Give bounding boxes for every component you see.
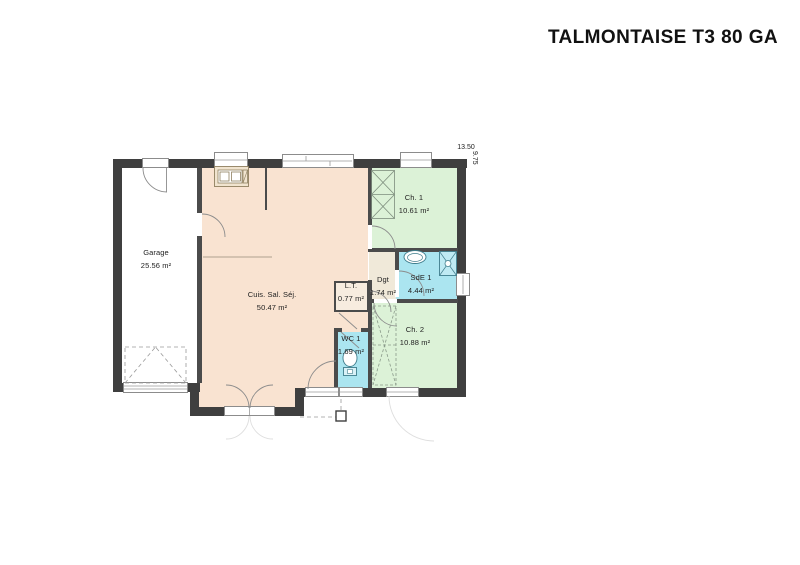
exterior-swing-arcs bbox=[226, 396, 434, 441]
room-label-garage: Garage 25.56 m² bbox=[116, 246, 196, 272]
room-name: Ch. 1 bbox=[374, 191, 454, 204]
room-area: 1.69 m² bbox=[326, 345, 376, 358]
room-name: Cuis. Sal. Séj. bbox=[222, 288, 322, 301]
room-name: Garage bbox=[116, 246, 196, 259]
entry-door-arc bbox=[308, 361, 336, 389]
room-area: 10.88 m² bbox=[375, 336, 455, 349]
closet-door-leaf bbox=[339, 313, 357, 329]
room-area: 50.47 m² bbox=[222, 301, 322, 314]
french-door-left-arc bbox=[226, 385, 249, 408]
porch-post bbox=[336, 411, 346, 421]
room-name: L.T. bbox=[326, 279, 376, 292]
room-name: Ch. 2 bbox=[375, 323, 455, 336]
garage-door-arc bbox=[202, 214, 225, 237]
kitchen-sink-unit bbox=[215, 167, 249, 187]
room-label-bedroom2: Ch. 2 10.88 m² bbox=[375, 323, 455, 349]
room-label-wc: WC 1 1.69 m² bbox=[326, 332, 376, 358]
porch bbox=[300, 399, 346, 421]
room-area: 0.77 m² bbox=[326, 292, 376, 305]
dimension-width-label: 13.50 bbox=[446, 144, 486, 151]
entrance-door-arc bbox=[143, 168, 167, 192]
floor-plan-page: TALMONTAISE T3 80 GA bbox=[0, 0, 800, 565]
dimension-height-label: 9.75 bbox=[471, 151, 478, 165]
room-area: 10.61 m² bbox=[374, 204, 454, 217]
bedroom1-door-arc bbox=[372, 226, 395, 249]
room-label-living: Cuis. Sal. Séj. 50.47 m² bbox=[222, 288, 322, 314]
garage-sectional-door bbox=[125, 347, 186, 383]
washbasin bbox=[404, 251, 426, 264]
french-door-right-arc bbox=[250, 385, 273, 408]
room-label-technical-closet: L.T. 0.77 m² bbox=[326, 279, 376, 305]
room-label-bedroom1: Ch. 1 10.61 m² bbox=[374, 191, 454, 217]
room-area: 25.56 m² bbox=[116, 259, 196, 272]
room-name: WC 1 bbox=[326, 332, 376, 345]
